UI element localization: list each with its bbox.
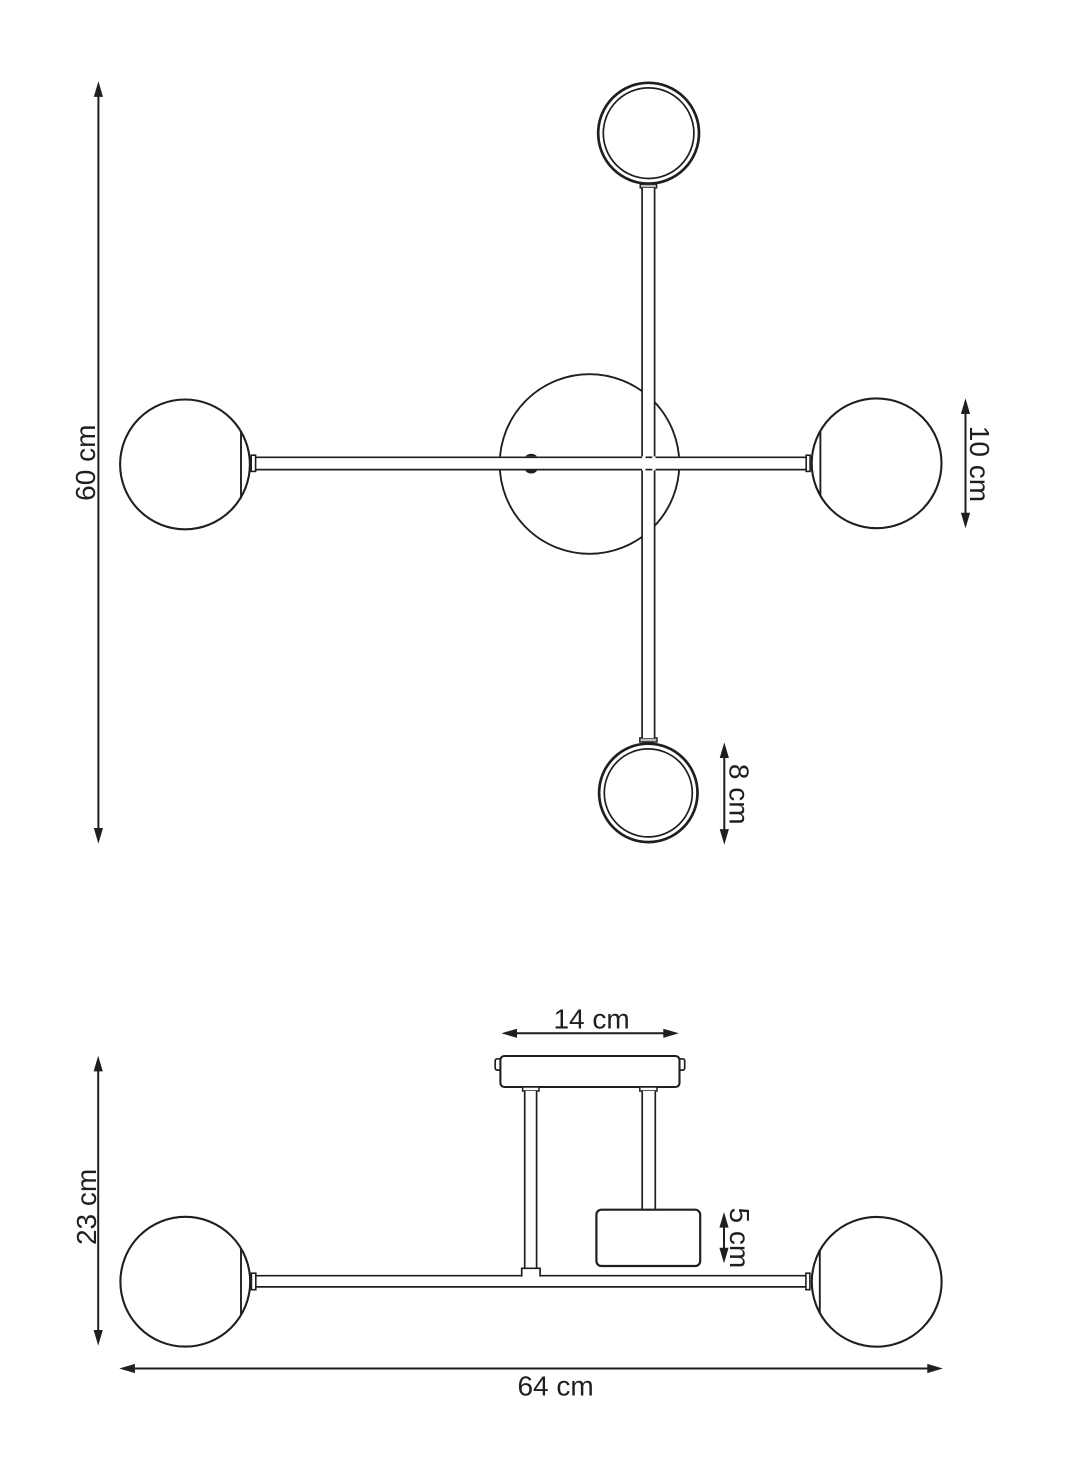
svg-text:10 cm: 10 cm [964, 426, 995, 502]
svg-text:64 cm: 64 cm [517, 1371, 593, 1402]
svg-text:60 cm: 60 cm [70, 425, 101, 501]
svg-text:8 cm: 8 cm [724, 764, 755, 825]
svg-text:23 cm: 23 cm [71, 1169, 102, 1245]
svg-text:5 cm: 5 cm [724, 1208, 755, 1269]
svg-text:14 cm: 14 cm [553, 1004, 629, 1035]
